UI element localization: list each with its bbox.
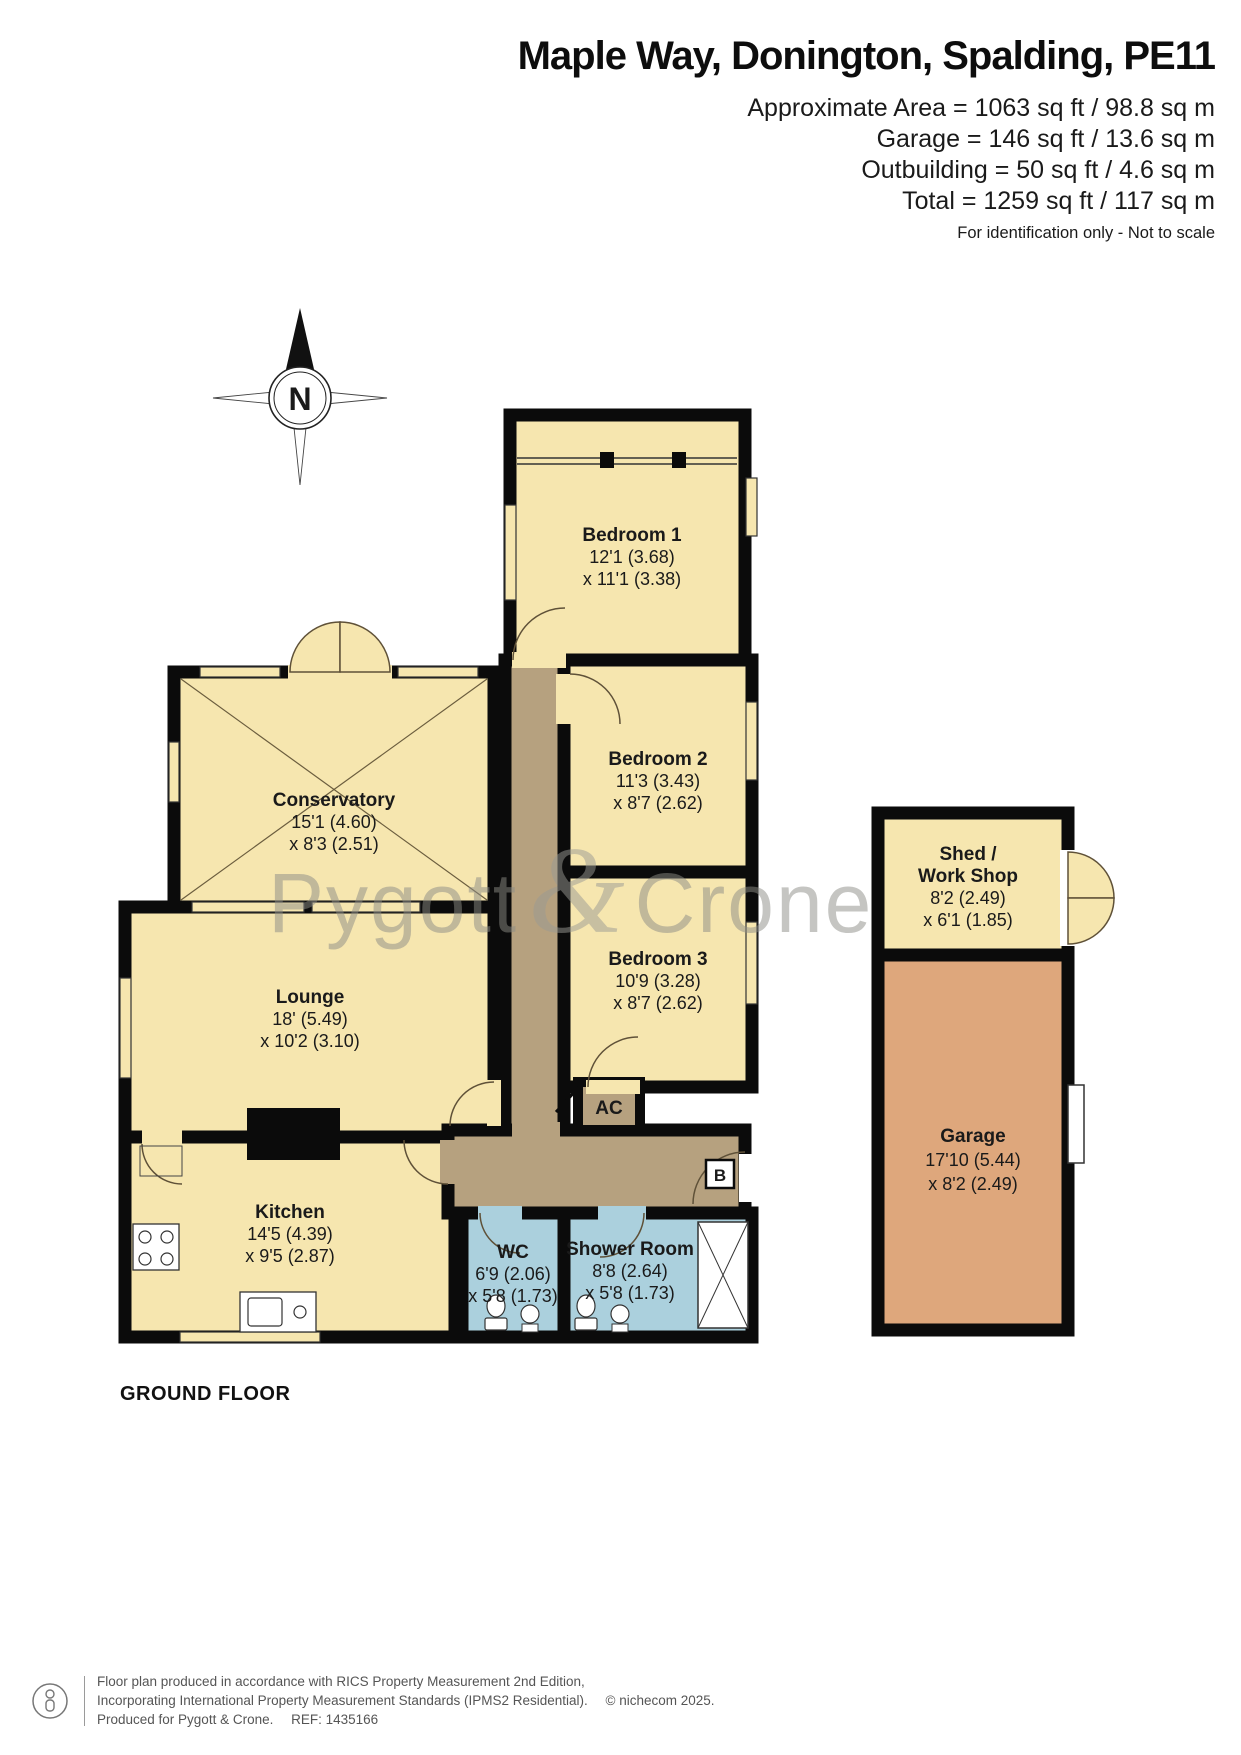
svg-text:14'5 (4.39): 14'5 (4.39) — [247, 1224, 333, 1244]
floorplan-page: { "header": { "title": "Maple Way, Donin… — [0, 0, 1241, 1755]
svg-text:15'1 (4.60): 15'1 (4.60) — [291, 812, 377, 832]
svg-text:12'1 (3.68): 12'1 (3.68) — [589, 547, 675, 567]
window-kitchen-bottom — [180, 1332, 320, 1342]
svg-text:x 8'3 (2.51): x 8'3 (2.51) — [289, 834, 378, 854]
floorplan-drawing: B Bedroom 1 12'1 (3.68) x 11'1 (3.38) Be… — [0, 0, 1241, 1755]
french-door-right — [340, 622, 390, 672]
boiler-label: B — [714, 1166, 726, 1185]
svg-text:Lounge: Lounge — [276, 987, 345, 1008]
window-bedroom3-right — [746, 922, 757, 1004]
footer-line1: Floor plan produced in accordance with R… — [97, 1672, 715, 1691]
footer-produced-for: Produced for Pygott & Crone. — [97, 1712, 273, 1727]
footer-ref: REF: 1435166 — [291, 1712, 378, 1727]
window-conservatory-left — [169, 742, 179, 802]
footer-line3: Produced for Pygott & Crone. REF: 143516… — [97, 1710, 715, 1729]
footer: Floor plan produced in accordance with R… — [30, 1672, 1210, 1729]
sink-icon — [240, 1292, 316, 1332]
svg-text:Shed /: Shed / — [939, 844, 997, 865]
svg-text:11'3 (3.43): 11'3 (3.43) — [616, 771, 700, 791]
window-lounge-divider-2 — [312, 902, 420, 912]
hallway-strip — [505, 660, 564, 1130]
window-lounge-divider-1 — [192, 902, 304, 912]
svg-text:x 5'8 (1.73): x 5'8 (1.73) — [585, 1283, 674, 1303]
basin-wc-icon — [521, 1305, 539, 1332]
label-bedroom1: Bedroom 1 12'1 (3.68) x 11'1 (3.38) — [582, 525, 682, 589]
chimney-breast — [247, 1108, 340, 1160]
label-kitchen: Kitchen 14'5 (4.39) x 9'5 (2.87) — [245, 1202, 334, 1266]
svg-text:x 8'7 (2.62): x 8'7 (2.62) — [613, 993, 702, 1013]
floor-label: GROUND FLOOR — [120, 1383, 290, 1406]
svg-text:Bedroom 2: Bedroom 2 — [608, 749, 707, 770]
svg-text:x 11'1 (3.38): x 11'1 (3.38) — [583, 569, 681, 589]
window-garage-right — [1068, 1085, 1084, 1163]
hob-icon — [133, 1224, 179, 1270]
svg-text:Garage: Garage — [940, 1126, 1005, 1147]
footer-copyright: © nichecom 2025. — [606, 1693, 715, 1708]
hallway-band — [448, 1130, 745, 1213]
svg-text:Kitchen: Kitchen — [255, 1202, 325, 1223]
svg-text:x 10'2 (3.10): x 10'2 (3.10) — [260, 1031, 360, 1051]
french-door-left — [290, 622, 340, 672]
shed-door-bottom — [1068, 898, 1114, 944]
footer-standards: Incorporating International Property Mea… — [97, 1693, 588, 1708]
svg-text:Bedroom 1: Bedroom 1 — [582, 525, 682, 546]
svg-text:x 8'2 (2.49): x 8'2 (2.49) — [928, 1174, 1017, 1194]
label-ac: AC — [595, 1098, 623, 1119]
basin-shower-icon — [611, 1305, 629, 1332]
svg-text:18' (5.49): 18' (5.49) — [272, 1009, 347, 1029]
svg-text:x 6'1 (1.85): x 6'1 (1.85) — [923, 910, 1012, 930]
window-conservatory-top-left — [200, 667, 280, 677]
window-bedroom1-right — [746, 478, 757, 536]
footer-line2: Incorporating International Property Mea… — [97, 1691, 715, 1710]
footer-text: Floor plan produced in accordance with R… — [97, 1672, 715, 1729]
svg-text:6'9 (2.06): 6'9 (2.06) — [475, 1264, 550, 1284]
svg-text:Work Shop: Work Shop — [918, 866, 1018, 887]
window-lounge-left — [120, 978, 131, 1078]
svg-text:WC: WC — [497, 1242, 529, 1263]
person-badge-icon — [30, 1681, 70, 1721]
svg-text:10'9 (3.28): 10'9 (3.28) — [615, 971, 701, 991]
shower-tray-icon — [698, 1222, 748, 1328]
svg-text:x 5'8 (1.73): x 5'8 (1.73) — [468, 1286, 557, 1306]
label-bedroom2: Bedroom 2 11'3 (3.43) x 8'7 (2.62) — [608, 749, 707, 813]
label-bedroom3: Bedroom 3 10'9 (3.28) x 8'7 (2.62) — [608, 949, 707, 1013]
svg-text:Shower Room: Shower Room — [566, 1239, 694, 1260]
footer-divider — [84, 1676, 85, 1726]
svg-text:Conservatory: Conservatory — [273, 790, 396, 811]
window-conservatory-top-right — [398, 667, 478, 677]
svg-text:8'2 (2.49): 8'2 (2.49) — [930, 888, 1005, 908]
shed-door-top — [1068, 852, 1114, 898]
svg-text:Bedroom 3: Bedroom 3 — [608, 949, 707, 970]
svg-text:8'8 (2.64): 8'8 (2.64) — [592, 1261, 667, 1281]
svg-text:x 9'5 (2.87): x 9'5 (2.87) — [245, 1246, 334, 1266]
window-bedroom2-right — [746, 702, 757, 780]
window-bedroom1-left — [505, 505, 516, 600]
svg-text:x 8'7 (2.62): x 8'7 (2.62) — [613, 793, 702, 813]
boiler-box: B — [706, 1160, 734, 1188]
svg-text:17'10 (5.44): 17'10 (5.44) — [925, 1150, 1021, 1170]
